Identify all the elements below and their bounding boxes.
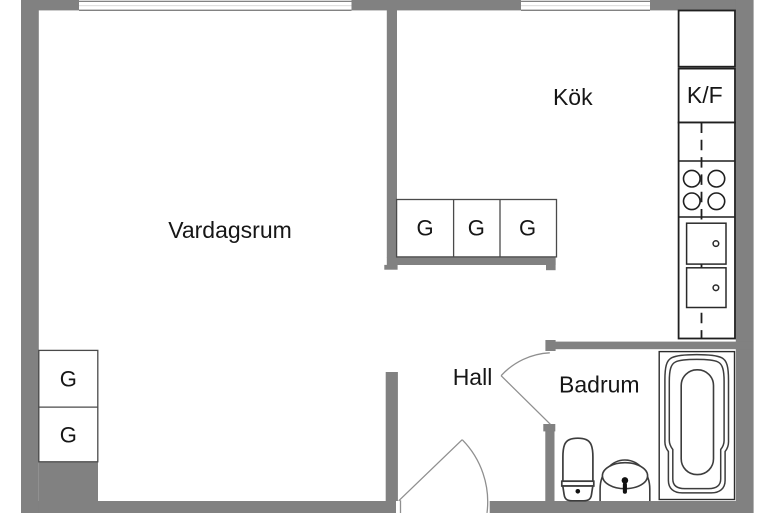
svg-text:G: G: [60, 423, 77, 448]
svg-text:Kök: Kök: [553, 84, 593, 110]
svg-text:Vardagsrum: Vardagsrum: [168, 217, 292, 243]
svg-text:G: G: [468, 216, 485, 241]
svg-text:G: G: [417, 216, 434, 241]
svg-text:Badrum: Badrum: [559, 371, 640, 397]
svg-text:G: G: [60, 367, 77, 392]
svg-text:Hall: Hall: [453, 364, 493, 390]
svg-text:G: G: [519, 216, 536, 241]
svg-text:K/F: K/F: [687, 82, 723, 108]
